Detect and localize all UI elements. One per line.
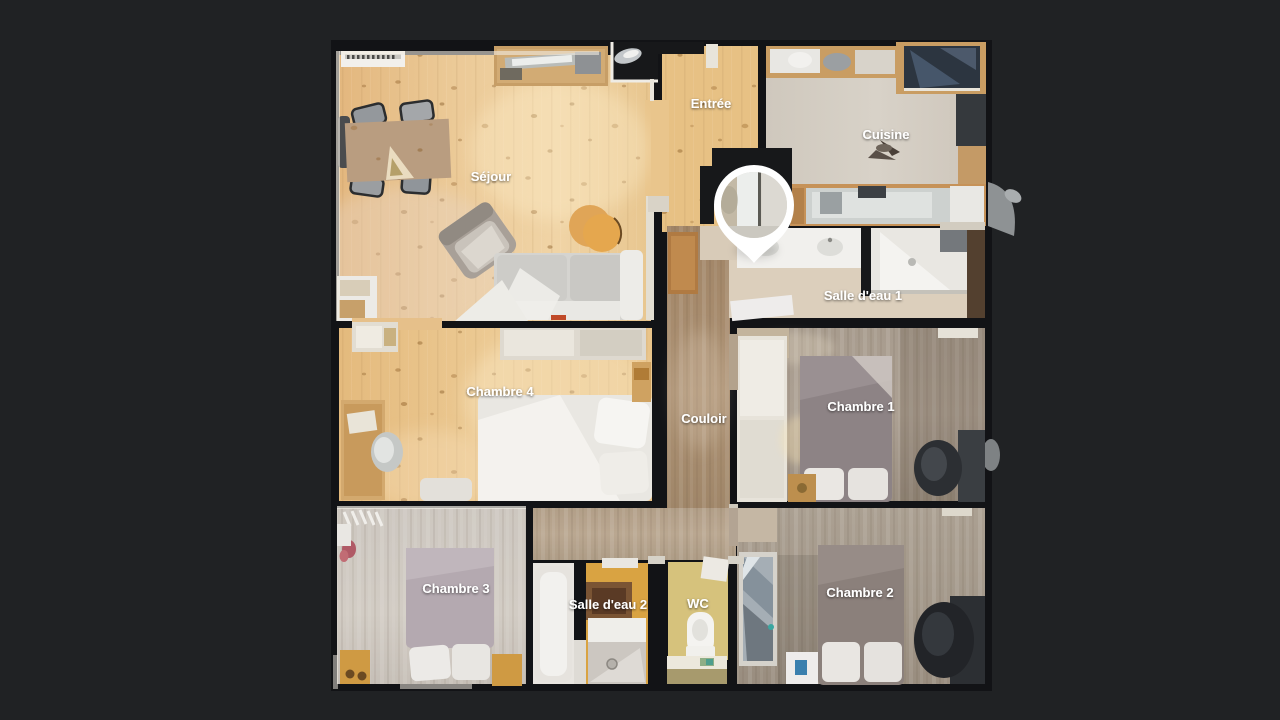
svg-text:Salle d'eau 2: Salle d'eau 2 [569, 597, 647, 612]
svg-text:Chambre 1: Chambre 1 [827, 399, 894, 414]
svg-text:Salle d'eau 1: Salle d'eau 1 [824, 288, 902, 303]
svg-text:Couloir: Couloir [681, 411, 727, 426]
svg-text:WC: WC [687, 596, 709, 611]
svg-text:Cuisine: Cuisine [863, 127, 910, 142]
svg-text:Chambre 2: Chambre 2 [826, 585, 893, 600]
svg-text:Entrée: Entrée [691, 96, 731, 111]
svg-text:Séjour: Séjour [471, 169, 511, 184]
svg-text:Chambre 4: Chambre 4 [466, 384, 534, 399]
svg-text:Chambre 3: Chambre 3 [422, 581, 489, 596]
